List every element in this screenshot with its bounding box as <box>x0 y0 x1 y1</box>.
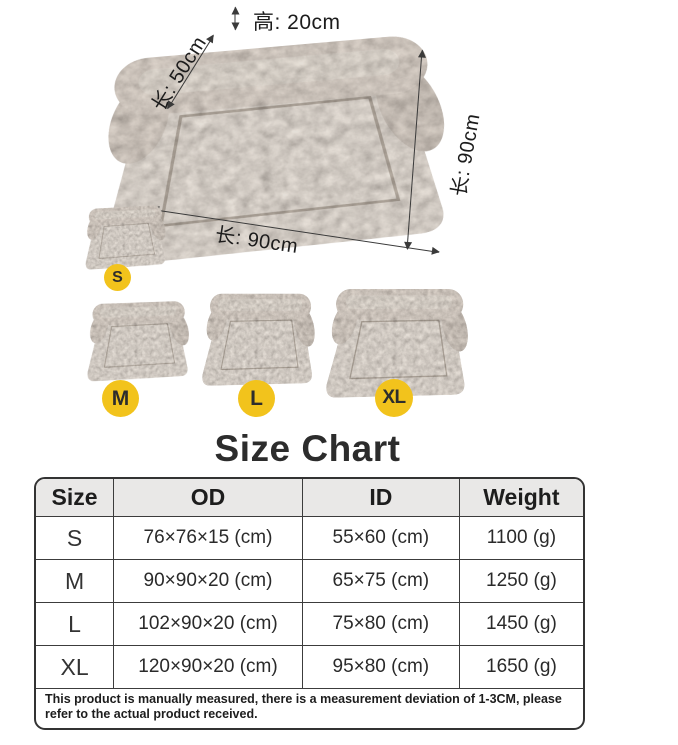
id-cell-l: 75×80 (cm) <box>302 602 459 645</box>
product-size-infographic: 高: 20cm 长: 50cm 长: 90cm 长: 90cm S M L XL… <box>0 0 678 745</box>
column-header-id: ID <box>302 479 459 516</box>
size-badge-m: M <box>102 380 139 417</box>
weight-cell-s: 1100 (g) <box>459 516 583 559</box>
height-dimension-label: 高: 20cm <box>253 6 341 36</box>
id-cell-s: 55×60 (cm) <box>302 516 459 559</box>
weight-cell-l: 1450 (g) <box>459 602 583 645</box>
weight-cell-xl: 1650 (g) <box>459 645 583 688</box>
column-header-size: Size <box>36 479 113 516</box>
size-chart-title: Size Chart <box>34 428 581 470</box>
od-cell-xl: 120×90×20 (cm) <box>113 645 302 688</box>
pet-bed-photo-l <box>202 286 318 386</box>
column-header-od: OD <box>113 479 302 516</box>
height-dimension-arrow <box>235 8 236 30</box>
size-cell-m: M <box>36 559 113 602</box>
od-cell-m: 90×90×20 (cm) <box>113 559 302 602</box>
size-cell-l: L <box>36 602 113 645</box>
size-badge-s: S <box>104 264 131 291</box>
weight-cell-m: 1250 (g) <box>459 559 583 602</box>
column-header-weight: Weight <box>459 479 583 516</box>
size-cell-xl: XL <box>36 645 113 688</box>
pet-bed-photo-m <box>85 294 194 382</box>
pet-bed-photo-s <box>82 200 169 270</box>
id-cell-xl: 95×80 (cm) <box>302 645 459 688</box>
size-badge-xl: XL <box>375 379 413 417</box>
measurement-disclaimer: This product is manually measured, there… <box>36 688 583 728</box>
od-cell-s: 76×76×15 (cm) <box>113 516 302 559</box>
od-cell-l: 102×90×20 (cm) <box>113 602 302 645</box>
size-chart-table: Size OD ID Weight S 76×76×15 (cm) 55×60 … <box>34 477 585 730</box>
size-cell-s: S <box>36 516 113 559</box>
id-cell-m: 65×75 (cm) <box>302 559 459 602</box>
size-badge-l: L <box>238 380 275 417</box>
